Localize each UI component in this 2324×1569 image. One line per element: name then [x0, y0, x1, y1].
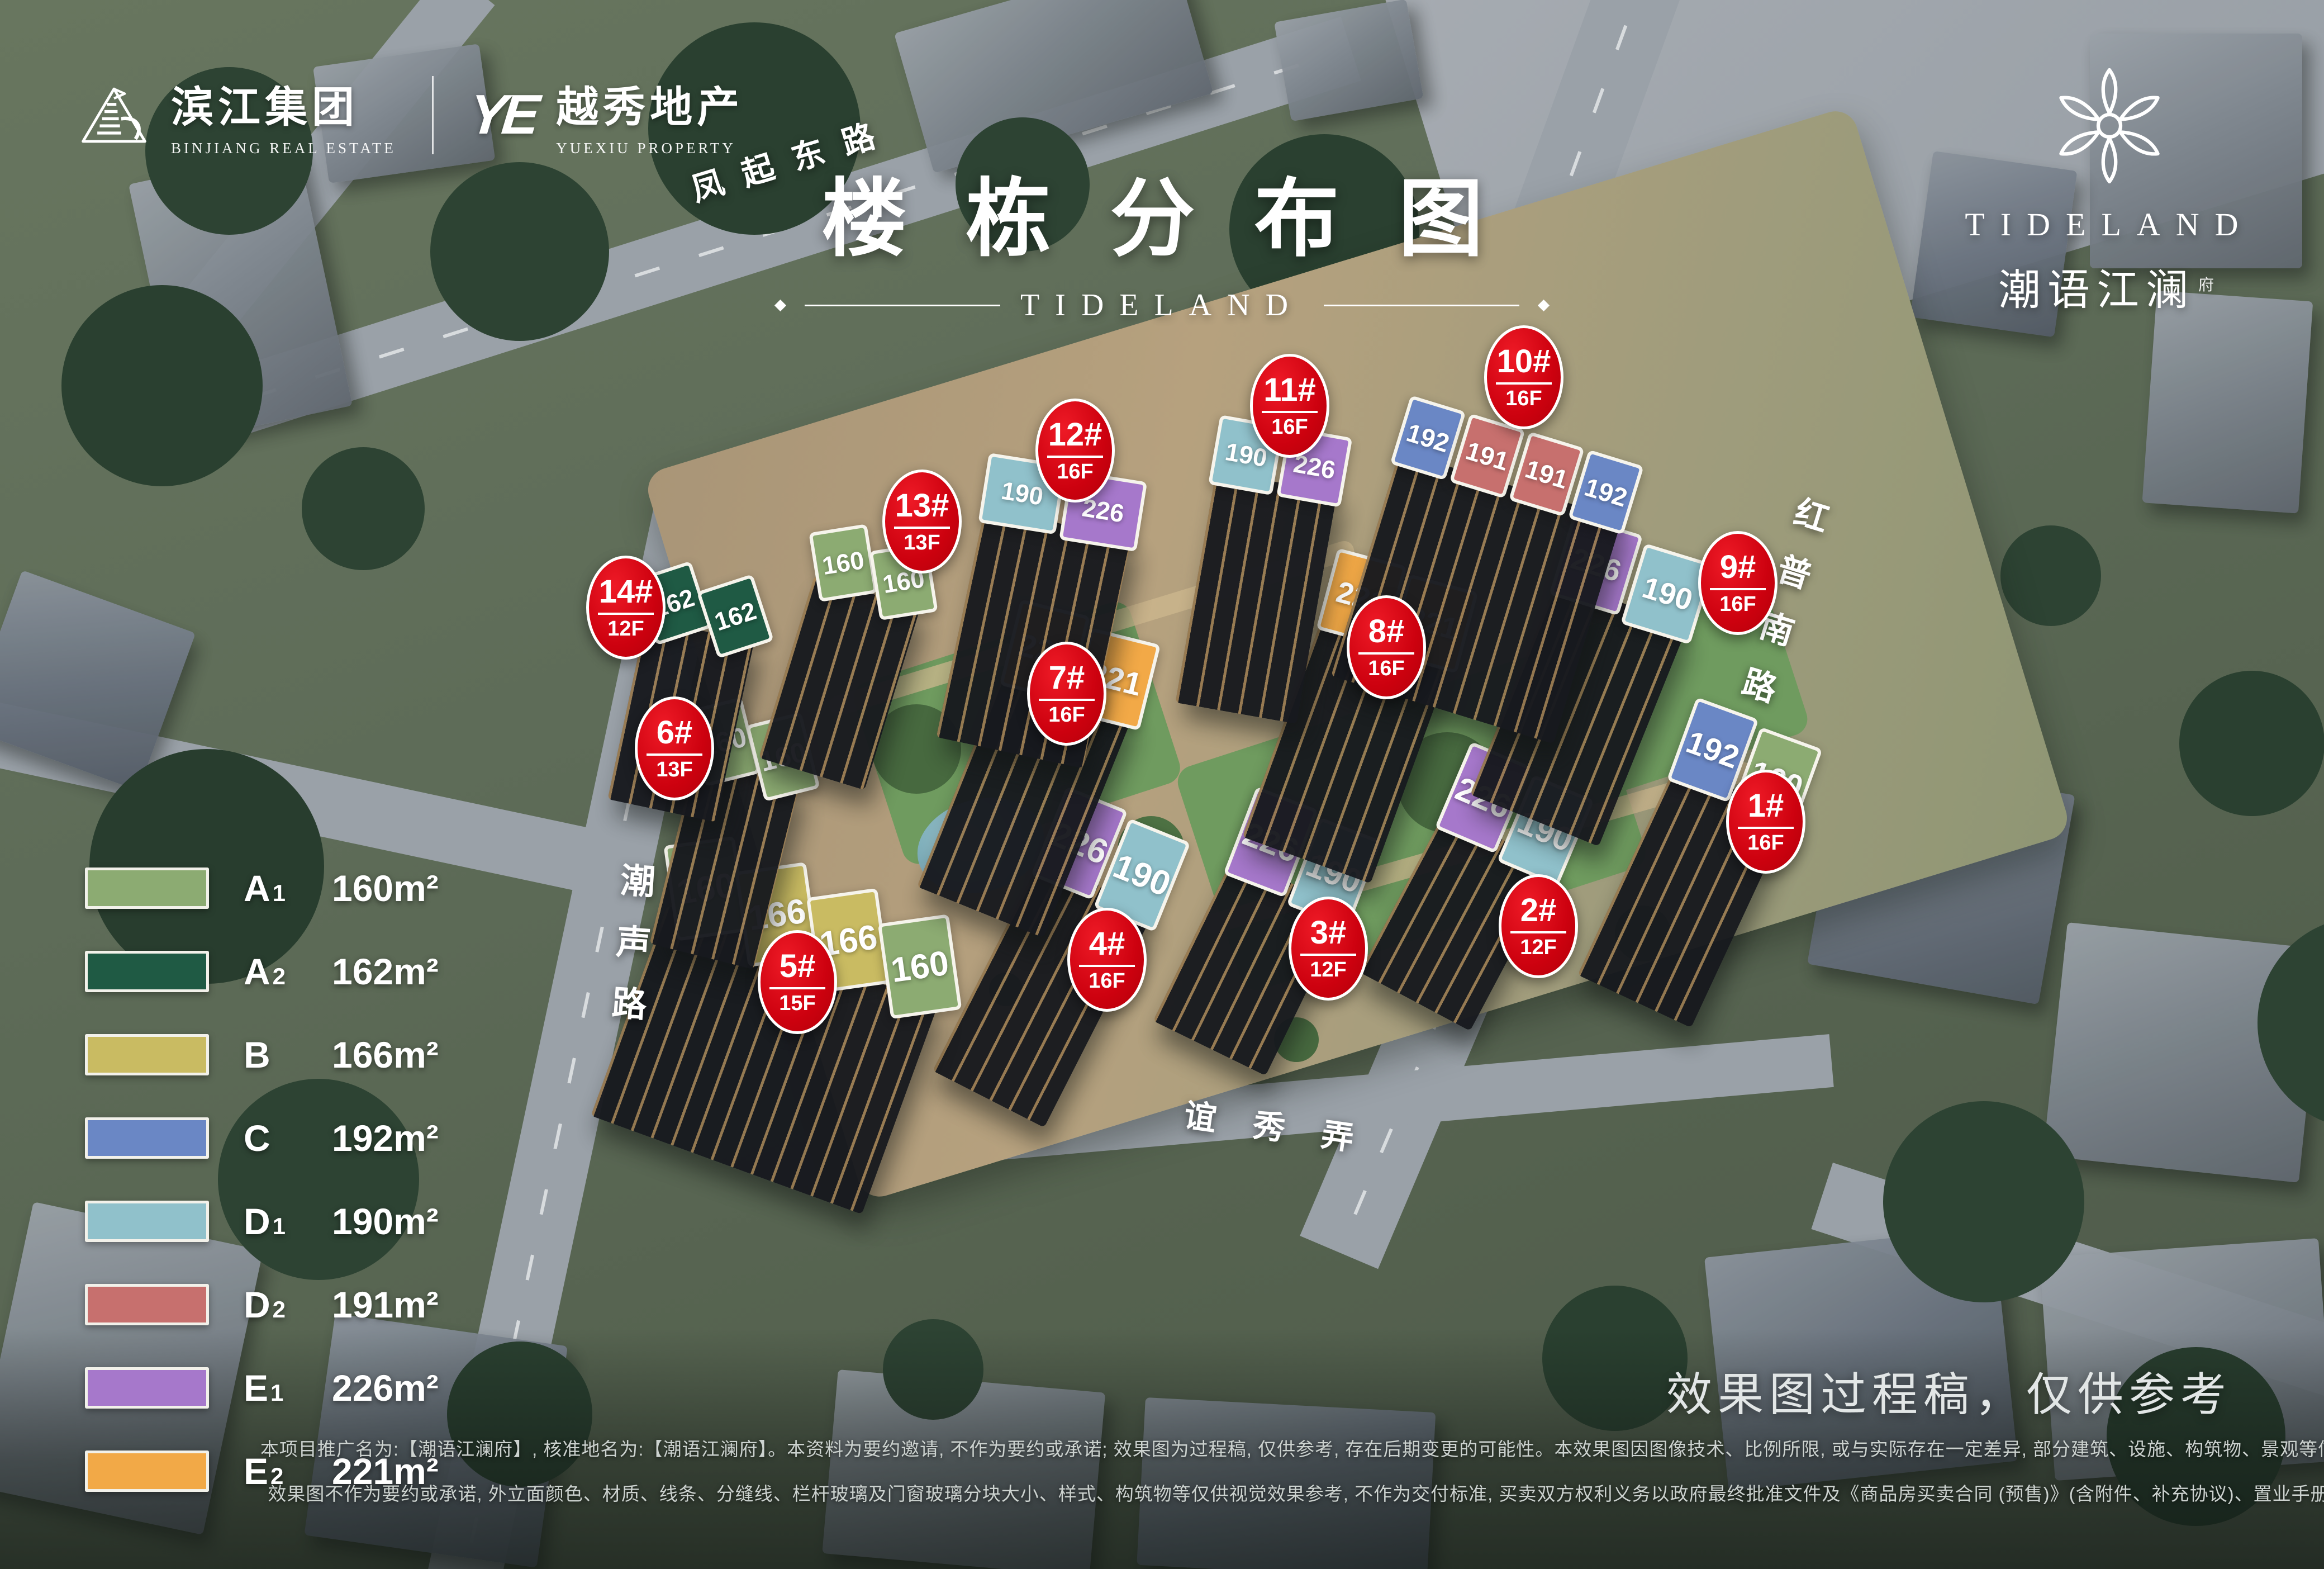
building-number: 11#	[1263, 374, 1316, 406]
page-title: 楼 栋 分 布 图	[822, 150, 1503, 273]
yuexiu-name-cn: 越秀地产	[556, 73, 744, 134]
badge-divider	[1047, 456, 1103, 458]
building-badge-6#: 6#13F	[635, 696, 714, 800]
building-floors: 13F	[656, 759, 692, 780]
legend-label: A2162m²	[244, 950, 439, 993]
building-floors: 12F	[607, 618, 644, 639]
building-floors: 16F	[1505, 388, 1542, 409]
badge-divider	[1039, 699, 1095, 701]
unit-block-A1: 160	[878, 914, 962, 1019]
building-number: 2#	[1520, 894, 1557, 927]
legend-label: B166m²	[244, 1034, 439, 1076]
building-floors: 16F	[1747, 832, 1784, 854]
building-number: 10#	[1497, 345, 1551, 378]
building-badge-12#: 12#16F	[1035, 399, 1115, 503]
legend-swatch-B	[85, 1034, 209, 1075]
badge-divider	[1510, 931, 1566, 933]
legend-swatch-A2	[85, 951, 209, 992]
building-badge-7#: 7#16F	[1027, 642, 1106, 746]
building-number: 14#	[599, 576, 653, 608]
legend-swatch-A1	[85, 868, 209, 909]
building-badge-4#: 4#16F	[1067, 908, 1147, 1012]
legend-swatch-D1	[85, 1201, 209, 1242]
legend-item-A2: A2162m²	[85, 951, 439, 992]
project-brand: TIDELAND 潮语江澜府	[1981, 56, 2238, 317]
building-floors: 12F	[1310, 959, 1346, 980]
legend-swatch-D2	[85, 1284, 209, 1325]
brand-suffix: 府	[2198, 277, 2221, 294]
city-building	[1274, 0, 1424, 121]
building-badge-13#: 13#13F	[882, 470, 962, 573]
badge-divider	[1079, 965, 1135, 967]
legend-swatch-E2	[85, 1451, 209, 1492]
building-badge-2#: 2#12F	[1499, 874, 1578, 978]
badge-divider	[1262, 411, 1318, 413]
building-badge-10#: 10#16F	[1484, 325, 1563, 429]
watermark-note: 效果图过程稿，仅供参考	[1666, 1357, 2232, 1424]
badge-divider	[1496, 382, 1552, 385]
legend-label: D2191m²	[244, 1283, 439, 1326]
building-floors: 16F	[1719, 594, 1756, 615]
rule-line	[805, 305, 1000, 306]
legend-label: A1160m²	[244, 867, 439, 909]
unit-block-A1: 160	[809, 524, 877, 602]
building-badge-8#: 8#16F	[1347, 595, 1426, 699]
building-floors: 12F	[1520, 937, 1556, 958]
building-floors: 16F	[1368, 658, 1404, 679]
legend-item-C: C192m²	[85, 1117, 439, 1159]
legend-label: C192m²	[244, 1117, 439, 1159]
building-badge-14#: 14#12F	[586, 556, 666, 660]
legend-item-E1: E1226m²	[85, 1367, 439, 1409]
badge-divider	[1710, 588, 1766, 590]
badge-divider	[769, 987, 825, 989]
diamond-icon	[774, 299, 786, 311]
building-badge-1#: 1#16F	[1726, 770, 1805, 874]
logo-divider	[432, 76, 434, 154]
building-number: 8#	[1368, 615, 1405, 648]
badge-divider	[1300, 954, 1356, 956]
binjiang-logo-text: 滨江集团 BINJIANG REAL ESTATE	[171, 73, 396, 157]
building-badge-5#: 5#15F	[758, 930, 837, 1034]
brand-name-cn: 潮语江澜府	[1998, 255, 2221, 317]
developer-logos: 滨江集团 BINJIANG REAL ESTATE YE 越秀地产 YUEXIU…	[78, 73, 744, 157]
building-floors: 15F	[779, 993, 815, 1014]
building-number: 13#	[895, 490, 949, 522]
building-number: 4#	[1089, 928, 1125, 960]
building-number: 6#	[657, 717, 693, 749]
building-floors: 16F	[1057, 461, 1093, 482]
badge-divider	[598, 613, 654, 615]
legend-item-D1: D1190m²	[85, 1201, 439, 1242]
building-number: 3#	[1310, 917, 1347, 949]
legend-item-B: B166m²	[85, 1034, 439, 1075]
building-floors: 13F	[904, 532, 940, 553]
building-number: 1#	[1748, 790, 1784, 822]
binjiang-name-cn: 滨江集团	[171, 73, 396, 134]
legend-item-D2: D2191m²	[85, 1284, 439, 1325]
building-number: 5#	[780, 950, 816, 983]
building-floors: 16F	[1089, 970, 1125, 992]
disclaimer-line-1: 本项目推广名为:【潮语江澜府】, 核准地名为:【潮语江澜府】。本资料为要约邀请,…	[260, 1434, 2324, 1461]
yuexiu-logo-text: 越秀地产 YUEXIU PROPERTY	[556, 73, 744, 157]
rule-line	[1324, 305, 1519, 306]
building-badge-9#: 9#16F	[1698, 531, 1778, 635]
tideland-flower-icon	[2040, 56, 2179, 196]
badge-divider	[1358, 652, 1414, 655]
page-title-subtitle: TIDELAND	[776, 287, 1548, 323]
binjiang-pyramid-icon	[78, 85, 150, 145]
unit-type-legend: A1160m²A2162m²B166m²C192m²D1190m²D2191m²…	[85, 868, 439, 1492]
building-badge-11#: 11#16F	[1250, 354, 1329, 458]
disclaimer-line-2: 效果图不作为要约或承诺, 外立面颜色、材质、线条、分缝线、栏杆玻璃及门窗玻璃分块…	[268, 1479, 2324, 1506]
legend-swatch-E1	[85, 1367, 209, 1409]
building-number: 7#	[1049, 662, 1085, 694]
building-distribution-map: 1921602261902261902261901601661661601601…	[0, 0, 2324, 1569]
legend-item-A1: A1160m²	[85, 868, 439, 909]
building-badge-3#: 3#12F	[1289, 897, 1368, 1001]
building-floors: 16F	[1271, 416, 1308, 438]
diamond-icon	[1538, 299, 1550, 311]
building-number: 12#	[1048, 419, 1102, 451]
badge-divider	[1738, 827, 1794, 829]
badge-divider	[647, 753, 702, 756]
building-number: 9#	[1720, 551, 1756, 584]
legend-label: D1190m²	[244, 1200, 439, 1243]
page-title-en: TIDELAND	[1020, 287, 1304, 323]
brand-name-en: TIDELAND	[1965, 206, 2254, 243]
badge-divider	[894, 527, 950, 529]
legend-label: E1226m²	[244, 1367, 439, 1409]
city-building	[2142, 291, 2313, 514]
yuexiu-monogram-icon: YE	[466, 83, 538, 147]
legend-swatch-C	[85, 1117, 209, 1159]
city-building	[2043, 922, 2323, 1183]
building-floors: 16F	[1048, 704, 1085, 726]
